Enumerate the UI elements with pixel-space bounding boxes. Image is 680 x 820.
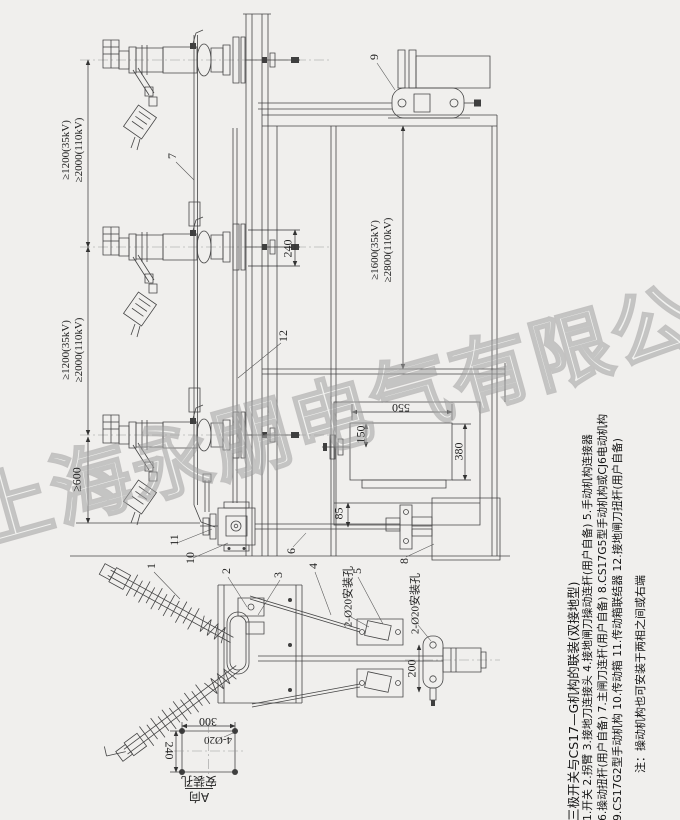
drawing-title: 三极开关与CS17—G机构的联装(双接地型) bbox=[563, 565, 579, 820]
part-label-6: 6 bbox=[284, 543, 298, 559]
dim-rod-offset: 85 bbox=[332, 502, 345, 526]
parts-list-line-2: 6.操动扭杆(用户自备) 7.主闸刀连杆(用户自备) 8.CS17G5型手动机构… bbox=[594, 375, 608, 820]
support-frame bbox=[70, 14, 510, 556]
view-a-tag: A向 安装孔 bbox=[172, 774, 226, 804]
earthing-torsion-rod bbox=[233, 128, 237, 503]
dim-mech-mount-height: 200 bbox=[405, 654, 418, 684]
dim-phase-spacing-upper: ≥1200(35kV) ≥2000(110kV) bbox=[60, 90, 86, 210]
leader-lines bbox=[154, 63, 434, 737]
dim-mount-height: ≥1600(35kV) ≥2800(110kV) bbox=[369, 187, 395, 313]
parts-list-line-3: 9.CS17G2型手动机构 10.传动箱 11.传动箱联结器 12.接地闸刀扭杆… bbox=[609, 395, 623, 820]
dim-pole-mount-spacing: 240 bbox=[281, 234, 294, 264]
dim-base-holes: 4-Ø20 bbox=[196, 733, 240, 746]
dim-mount-holes-right: 2-Ø20安装孔 bbox=[410, 558, 423, 650]
main-operating-rod bbox=[189, 35, 215, 527]
dim-phase-spacing-lower: ≥1200(35kV) ≥2000(110kV) bbox=[60, 290, 86, 410]
part-label-8: 8 bbox=[397, 553, 411, 569]
dim-mech-box-width: 550 bbox=[386, 402, 416, 415]
view-a-label: A向 bbox=[185, 788, 213, 804]
part-label-11: 11 bbox=[167, 530, 181, 550]
part-label-5: 5 bbox=[350, 563, 364, 579]
parts-list-line-1: 1.开关 2.拐臂 3.接地刀连接头 4.接地闸刀操动连杆(用户自备) 5.手动… bbox=[579, 385, 593, 820]
part-label-12: 12 bbox=[276, 326, 290, 346]
front-view bbox=[96, 558, 500, 772]
engineering-drawing-sheet: 上海永朋电气有限公司 ≥1200(35kV) ≥2000(110kV) ≥120… bbox=[0, 0, 680, 820]
manual-mechanism-9 bbox=[388, 50, 490, 118]
dim-mech-box-height: 380 bbox=[452, 437, 465, 467]
pole-top bbox=[80, 30, 330, 150]
dim-base-hole-width: 300 bbox=[191, 716, 225, 729]
transmission-box bbox=[200, 474, 255, 551]
view-a-sublabel: 安装孔 bbox=[181, 773, 217, 788]
drawing-note: 注：操动机构也可安装于两相之间或右端 bbox=[632, 565, 646, 773]
part-label-7: 7 bbox=[165, 148, 179, 164]
dim-end-clearance: ≥600 bbox=[70, 457, 83, 503]
part-label-4: 4 bbox=[306, 558, 320, 574]
part-label-10: 10 bbox=[183, 548, 197, 568]
dim-mech-shaft-offset: 150 bbox=[354, 420, 367, 450]
dim-base-hole-height: 240 bbox=[164, 736, 177, 766]
part-label-1: 1 bbox=[144, 558, 158, 574]
part-label-9: 9 bbox=[367, 49, 381, 65]
part-label-3: 3 bbox=[271, 567, 285, 583]
part-label-2: 2 bbox=[219, 563, 233, 579]
